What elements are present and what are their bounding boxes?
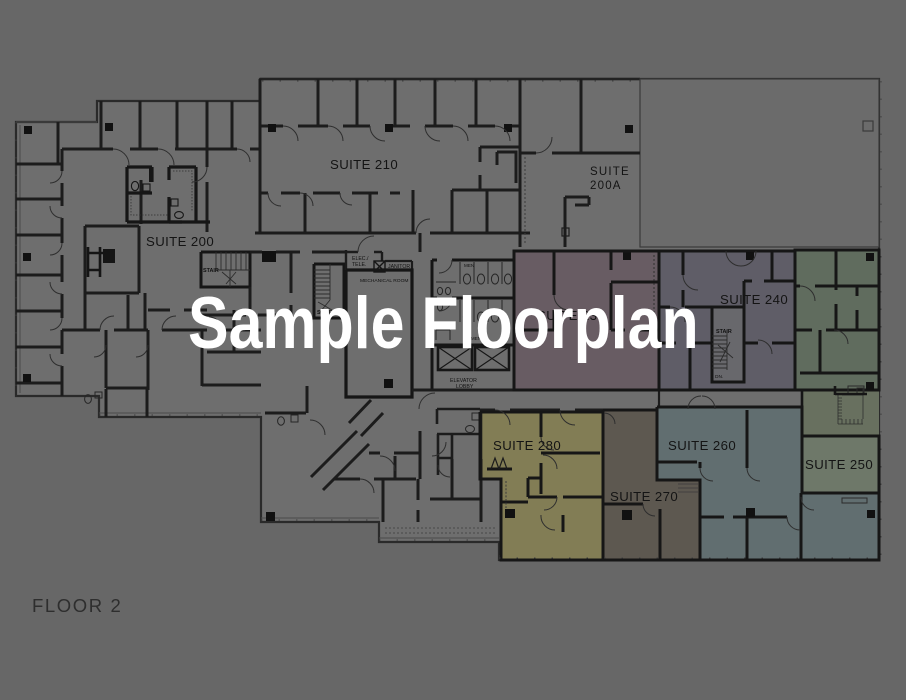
svg-text:SUITE 210: SUITE 210 xyxy=(330,157,398,172)
svg-text:Sample Floorplan: Sample Floorplan xyxy=(188,283,699,364)
svg-text:STAIR: STAIR xyxy=(203,268,219,274)
svg-text:SUITE 240: SUITE 240 xyxy=(720,292,788,307)
svg-text:STAIR: STAIR xyxy=(716,329,732,335)
svg-text:200A: 200A xyxy=(590,180,622,192)
svg-text:SUITE 260: SUITE 260 xyxy=(668,438,736,453)
svg-text:SUITE 280: SUITE 280 xyxy=(493,438,561,453)
svg-text:TELE.: TELE. xyxy=(352,262,366,268)
svg-text:FLOOR 2: FLOOR 2 xyxy=(32,595,122,616)
svg-text:MEN: MEN xyxy=(464,263,474,268)
svg-text:SUITE 200: SUITE 200 xyxy=(146,234,214,249)
svg-text:DN.: DN. xyxy=(715,374,723,380)
svg-text:SUITE: SUITE xyxy=(590,166,630,178)
svg-text:SUITE 250: SUITE 250 xyxy=(805,457,873,472)
svg-text:SUITE 270: SUITE 270 xyxy=(610,489,678,504)
